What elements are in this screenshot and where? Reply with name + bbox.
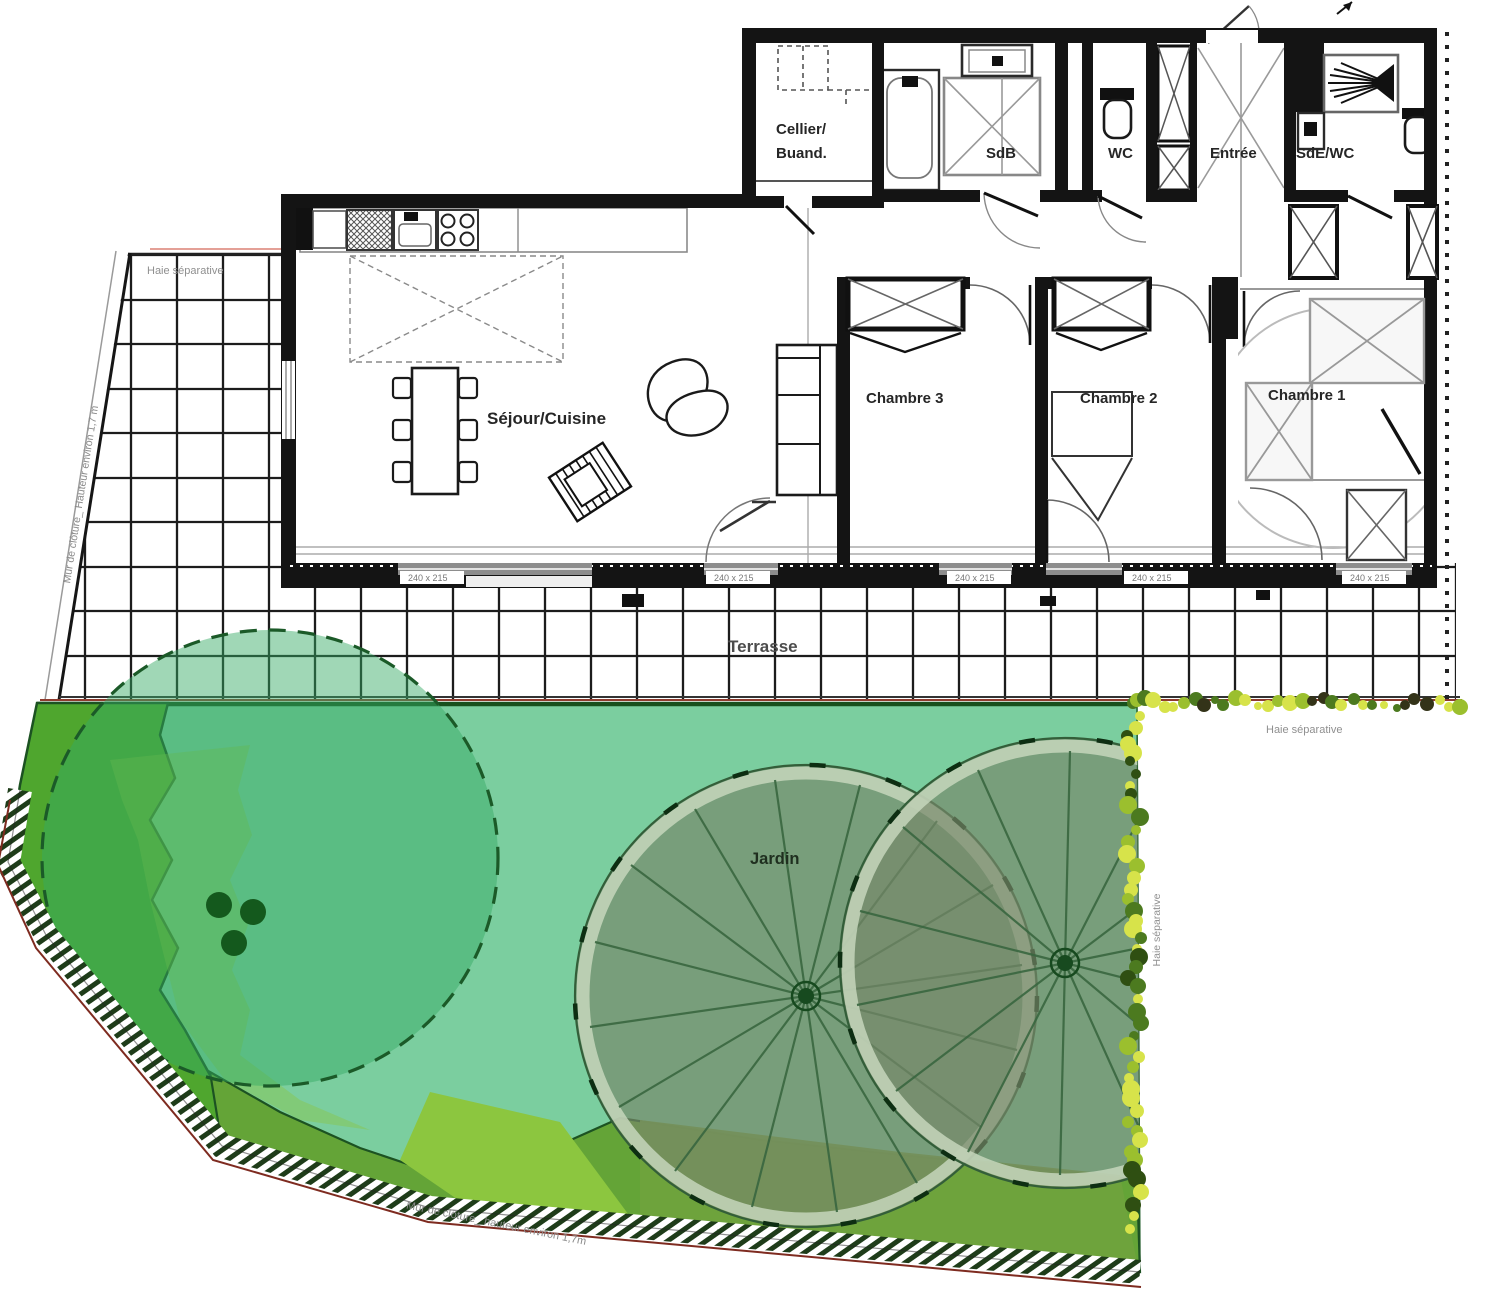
svg-text:Chambre 3: Chambre 3 — [866, 390, 944, 407]
svg-text:Chambre 2: Chambre 2 — [1080, 390, 1158, 407]
svg-text:Entrée: Entrée — [1210, 145, 1257, 162]
svg-text:Terrasse: Terrasse — [728, 637, 798, 656]
svg-text:Jardin: Jardin — [750, 850, 800, 868]
svg-text:SdE/WC: SdE/WC — [1296, 145, 1354, 162]
svg-text:240 x 215: 240 x 215 — [1132, 573, 1172, 583]
svg-text:Cellier/: Cellier/ — [776, 121, 827, 138]
svg-text:Séjour/Cuisine: Séjour/Cuisine — [487, 409, 606, 428]
svg-text:Haie séparative: Haie séparative — [1151, 893, 1163, 966]
svg-text:Chambre 1: Chambre 1 — [1268, 387, 1346, 404]
svg-text:240 x 215: 240 x 215 — [714, 573, 754, 583]
svg-text:SdB: SdB — [986, 145, 1016, 162]
svg-text:Haie séparative: Haie séparative — [147, 265, 223, 277]
svg-text:Haie séparative: Haie séparative — [1266, 724, 1342, 736]
svg-text:240 x 215: 240 x 215 — [1350, 573, 1390, 583]
svg-text:WC: WC — [1108, 145, 1133, 162]
svg-text:240 x 215: 240 x 215 — [955, 573, 995, 583]
svg-text:Buand.: Buand. — [776, 145, 827, 162]
svg-text:240 x 215: 240 x 215 — [408, 573, 448, 583]
